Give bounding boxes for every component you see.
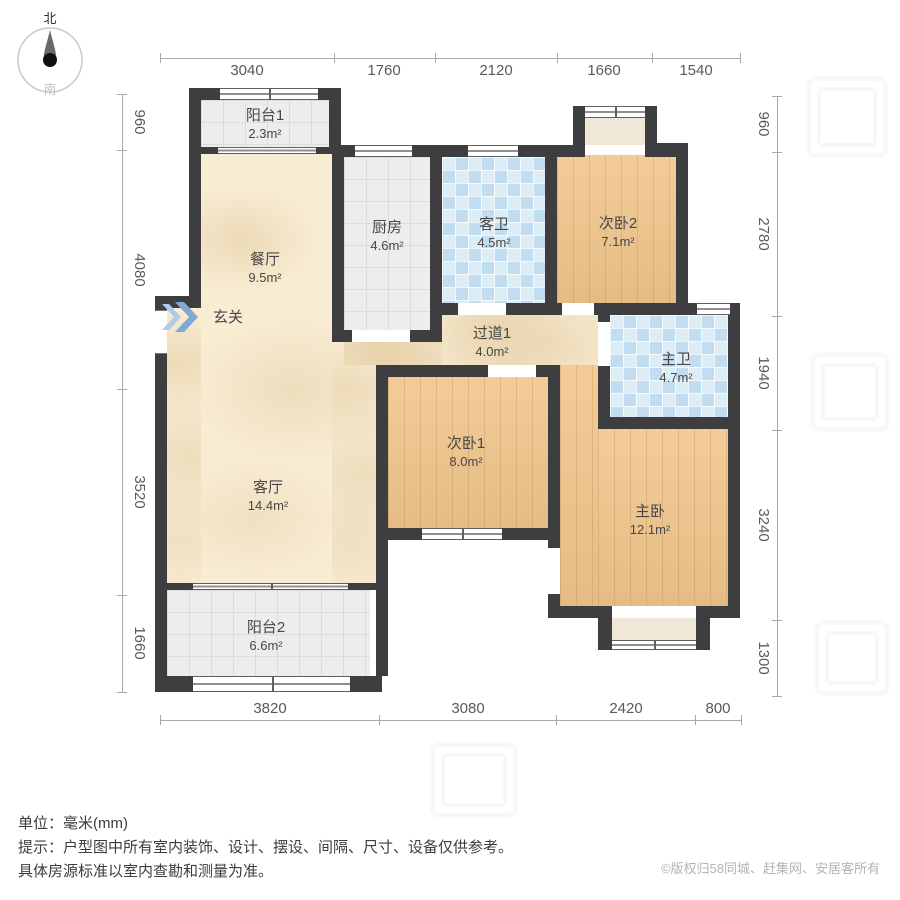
room-label-master-bath: 主卫 4.7m²	[616, 350, 736, 386]
dim-tick	[379, 715, 380, 725]
wall-segment	[412, 145, 468, 157]
wall-segment	[376, 365, 488, 377]
compass: 北 南	[8, 8, 92, 100]
wall-segment	[696, 606, 740, 618]
window	[697, 303, 730, 315]
bay-window	[585, 106, 645, 118]
room-entry-floor	[167, 308, 201, 583]
wall-segment	[502, 528, 548, 540]
sliding-door	[193, 583, 348, 590]
wall-segment	[548, 606, 612, 618]
dim-line-top	[160, 58, 740, 59]
wall-segment	[201, 147, 218, 154]
tip-line1: 提示：户型图中所有室内装饰、设计、摆设、间隔、尺寸、设备仅供参考。	[18, 836, 513, 857]
dim-tick	[117, 595, 127, 596]
floor-plan: 北 南	[0, 0, 900, 900]
wall-segment	[316, 147, 332, 154]
dim-tick	[772, 430, 782, 431]
wall-segment	[598, 366, 610, 417]
copyright-note: ©版权归58同城、赶集网、安居客所有	[661, 858, 880, 877]
dim-line-bottom	[160, 720, 741, 721]
wall-segment	[318, 88, 341, 100]
dim-tick	[772, 620, 782, 621]
window	[193, 676, 350, 692]
room-label-master-bedroom: 主卧 12.1m²	[590, 502, 710, 538]
dim-line-right	[777, 96, 778, 696]
wall-segment	[189, 88, 201, 308]
dim-bottom-0: 3820	[230, 700, 310, 717]
dim-tick	[557, 53, 558, 63]
dim-right-3: 3240	[752, 497, 772, 553]
room-label-bedroom1: 次卧1 8.0m²	[406, 434, 526, 470]
dim-right-0: 960	[752, 96, 772, 152]
tip-line2: 具体房源标准以室内查勘和测量为准。	[18, 860, 273, 881]
room-living-floor	[332, 342, 376, 583]
unit-note: 单位：毫米(mm)	[18, 812, 128, 833]
room-label-entry: 玄关	[168, 308, 288, 327]
wall-segment	[548, 365, 560, 548]
room-label-hallway: 过道1 4.0m²	[432, 324, 552, 360]
watermark	[810, 352, 890, 432]
dim-right-1: 2780	[752, 206, 772, 262]
window	[422, 528, 502, 540]
bedroom2-bay-floor	[585, 118, 645, 145]
wall-segment	[594, 303, 697, 315]
watermark	[814, 620, 890, 696]
master-bay-floor	[612, 618, 696, 640]
room-dining-living-floor	[201, 154, 332, 583]
wall-segment	[536, 365, 548, 377]
dim-top-2: 2120	[456, 62, 536, 79]
compass-south-label: 南	[43, 79, 56, 98]
dim-left-1: 4080	[128, 242, 148, 298]
wall-segment	[332, 145, 355, 157]
wall-segment	[506, 303, 562, 315]
room-label-kitchen: 厨房 4.6m²	[327, 218, 447, 254]
window	[220, 88, 318, 100]
room-label-balcony2: 阳台2 6.6m²	[206, 618, 326, 654]
wall-segment	[598, 618, 612, 650]
dim-tick	[160, 53, 161, 63]
dim-bottom-3: 800	[688, 700, 748, 717]
wall-segment	[350, 676, 382, 692]
wall-segment	[730, 303, 740, 315]
dim-bottom-2: 2420	[586, 700, 666, 717]
compass-north-label: 北	[43, 8, 56, 27]
room-label-bedroom2: 次卧2 7.1m²	[558, 214, 678, 250]
dim-tick	[334, 53, 335, 63]
dim-right-4: 1300	[752, 630, 772, 686]
wall-segment	[155, 676, 193, 692]
room-master-bedroom-floor-west	[560, 365, 598, 606]
wall-segment	[696, 618, 710, 650]
dim-left-3: 1660	[128, 615, 148, 671]
room-label-living: 客厅 14.4m²	[208, 478, 328, 514]
wall-segment	[598, 417, 740, 429]
dim-top-1: 1760	[344, 62, 424, 79]
dim-tick	[652, 53, 653, 63]
dim-top-3: 1660	[564, 62, 644, 79]
wall-segment	[376, 365, 388, 676]
dim-bottom-1: 3080	[428, 700, 508, 717]
wall-segment	[376, 528, 422, 540]
dim-tick	[772, 96, 782, 97]
dim-tick	[556, 715, 557, 725]
wall-segment	[167, 583, 193, 590]
dim-top-0: 3040	[207, 62, 287, 79]
wall-segment	[442, 303, 458, 315]
dim-left-2: 3520	[128, 464, 148, 520]
dim-tick	[117, 94, 127, 95]
dim-tick	[772, 316, 782, 317]
dim-right-2: 1940	[752, 345, 772, 401]
bay-window	[612, 640, 696, 650]
sliding-door	[218, 147, 316, 154]
dim-top-4: 1540	[656, 62, 736, 79]
window	[468, 145, 518, 157]
wall-segment	[155, 352, 167, 692]
wall-segment	[518, 145, 585, 157]
room-hallway-floor-west	[344, 342, 442, 365]
dim-left-0: 960	[128, 94, 148, 150]
dim-tick	[117, 389, 127, 390]
wall-segment	[645, 143, 688, 157]
room-label-balcony1: 阳台1 2.3m²	[205, 106, 325, 142]
dim-line-left	[122, 94, 123, 692]
dim-tick	[117, 150, 127, 151]
dim-tick	[772, 152, 782, 153]
window	[355, 145, 412, 157]
wall-segment	[573, 106, 585, 145]
wall-segment	[189, 88, 220, 100]
watermark	[430, 742, 518, 818]
wall-segment	[645, 106, 657, 145]
wall-segment	[332, 330, 352, 342]
dim-tick	[117, 692, 127, 693]
dim-tick	[772, 696, 782, 697]
dim-tick	[160, 715, 161, 725]
dim-tick	[740, 53, 741, 63]
wall-segment	[348, 583, 376, 590]
room-label-dining: 餐厅 9.5m²	[205, 250, 325, 286]
watermark	[806, 76, 888, 158]
room-label-guest-bath: 客卫 4.5m²	[434, 215, 554, 251]
dim-tick	[435, 53, 436, 63]
